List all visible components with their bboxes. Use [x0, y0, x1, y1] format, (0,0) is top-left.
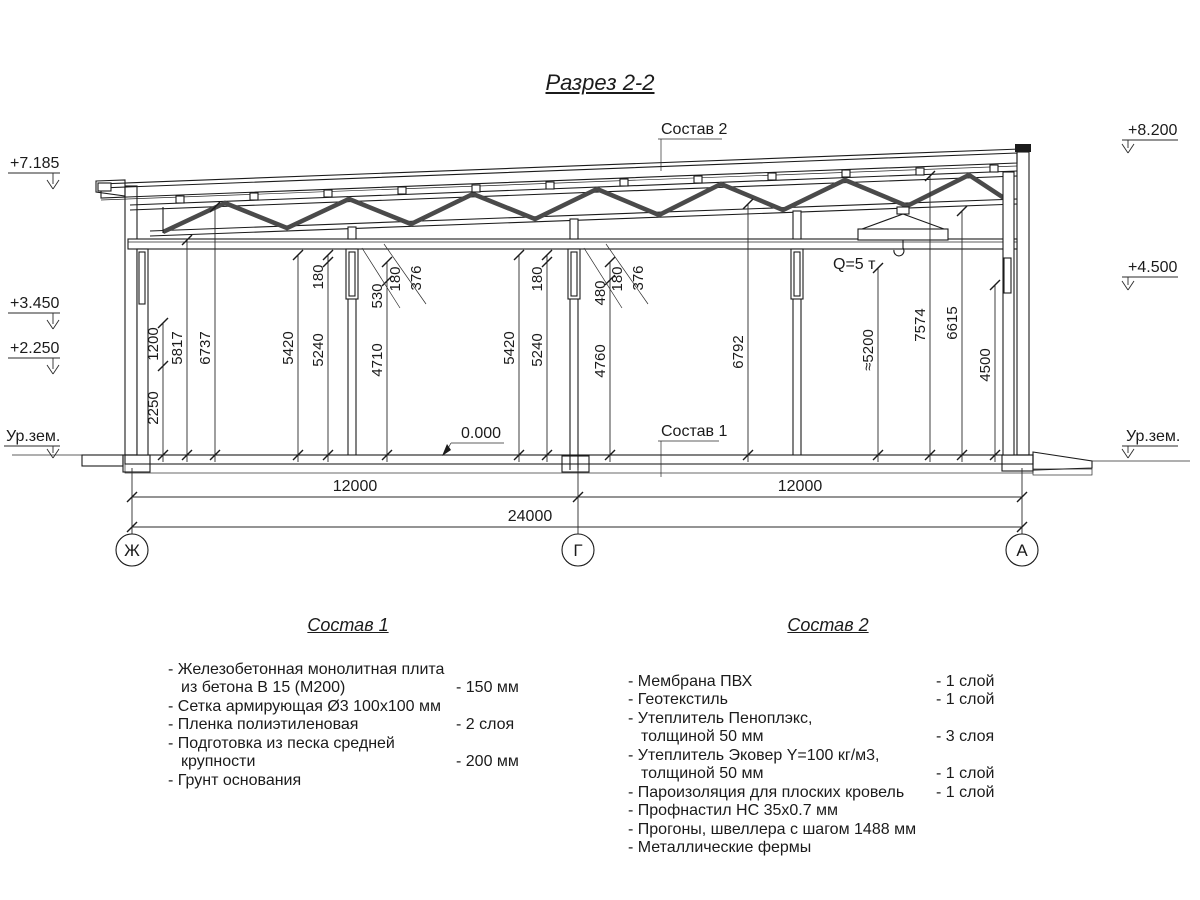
zero-level-label: 0.000 [461, 425, 501, 442]
legend-item: - Профнастил НС 35х0.7 мм [628, 802, 1008, 821]
purlins [176, 165, 998, 203]
canopy [96, 180, 125, 196]
legend-item: - Подготовка из песка средней крупности … [168, 735, 528, 772]
legend-line: - Железобетонная монолитная плита [168, 661, 456, 680]
legend-item: - Прогоны, швеллера с шагом 1488 мм [628, 821, 1008, 840]
dim-2250: 2250 [145, 391, 162, 424]
dim-4760: 4760 [592, 344, 609, 377]
legend-line: - Подготовка из песка средней [168, 735, 456, 754]
legend-value: - 1 слой [936, 784, 1008, 803]
dim-530: 530 [369, 283, 386, 308]
axis-label-zh: Ж [124, 541, 140, 560]
dim-5420-b: 5420 [501, 331, 518, 364]
dim-1200: 1200 [145, 327, 162, 360]
callout-sostav2-label: Состав 2 [661, 121, 727, 138]
legend-value: - 1 слой [936, 765, 1008, 784]
legend-line: - Профнастил НС 35х0.7 мм [628, 802, 936, 821]
elevation-marks-right: +8.200 +4.500 Ур.зем. [1122, 122, 1180, 458]
dim-4500: 4500 [977, 348, 994, 381]
callout-sostav1-label: Состав 1 [661, 423, 727, 440]
parapet-cap [1015, 144, 1031, 152]
legend-value: - 1 слой [936, 673, 1008, 692]
legend-line: из бетона В 15 (М200) [168, 679, 456, 698]
elev-7185: +7.185 [10, 155, 59, 172]
crane-capacity-label: Q=5 т [833, 256, 876, 273]
legend-item: - Пароизоляция для плоских кровель - 1 с… [628, 784, 1008, 803]
legend-line: - Геотекстиль [628, 691, 936, 710]
dim-lead-376-b: 376 [630, 265, 647, 290]
legend-line: - Утеплитель Пеноплэкс, [628, 710, 936, 729]
column-right [1003, 172, 1014, 455]
callout-sostav2: Состав 2 [658, 121, 727, 171]
legend-line: - Пароизоляция для плоских кровель [628, 784, 936, 803]
wall-right-parapet [1017, 152, 1029, 455]
legend-line: - Металлические фермы [628, 839, 936, 858]
dim-5817: 5817 [169, 331, 186, 364]
dim-5240-a: 5240 [310, 333, 327, 366]
grid-axes: Ж Г А [116, 534, 1038, 566]
foundation-right [1002, 455, 1033, 471]
legend-line: - Сетка армирующая Ø3 100х100 мм [168, 698, 456, 717]
legend2-heading: Состав 2 [638, 616, 1018, 635]
legend-line: крупности [168, 753, 456, 772]
legend-value: - 1 слой [936, 691, 1008, 710]
axis-label-a: А [1016, 541, 1028, 560]
drawing-sheet: Разрез 2-2 [0, 0, 1200, 900]
dim-7574: 7574 [912, 308, 929, 341]
ramp [1033, 452, 1092, 470]
dim-6792: 6792 [730, 335, 747, 368]
callout-sostav1: Состав 1 [658, 423, 727, 477]
dim-bay1-12000: 12000 [333, 478, 378, 495]
dim-5420-a: 5420 [280, 331, 297, 364]
legend-line: толщиной 50 мм [628, 728, 936, 747]
legend-item: - Металлические фермы [628, 839, 1008, 858]
elev-4500: +4.500 [1128, 259, 1177, 276]
elev-8200: +8.200 [1128, 122, 1177, 139]
wall-left [125, 186, 137, 455]
legend-item: - Утеплитель Эковер Y=100 кг/м3, толщино… [628, 747, 1008, 784]
dim-total-24000: 24000 [508, 508, 553, 525]
legend-item: - Геотекстиль - 1 слой [628, 691, 1008, 710]
dim-lead-376-a: 376 [408, 265, 425, 290]
dim-180-a: 180 [310, 264, 327, 289]
legend-sostav1: Состав 1 - Железобетонная монолитная пли… [168, 616, 528, 790]
elev-ground-right: Ур.зем. [1126, 428, 1180, 445]
roof [99, 149, 1020, 200]
horizontal-dimensions: 12000 12000 24000 [127, 468, 1027, 534]
column-2 [568, 219, 580, 470]
dim-480: 480 [592, 280, 609, 305]
legend-line: - Прогоны, швеллера с шагом 1488 мм [628, 821, 936, 840]
legend-line: - Утеплитель Эковер Y=100 кг/м3, [628, 747, 936, 766]
legend-item: - Железобетонная монолитная плита из бет… [168, 661, 528, 698]
column-1 [346, 227, 358, 455]
legend-sostav2: Состав 2 - Мембрана ПВХ - 1 слой - Геоте… [628, 616, 1008, 858]
legend-line: толщиной 50 мм [628, 765, 936, 784]
legend-line: - Пленка полиэтиленовая [168, 716, 456, 735]
elev-3450: +3.450 [10, 295, 59, 312]
legend-item: - Утеплитель Пеноплэкс, толщиной 50 мм -… [628, 710, 1008, 747]
dim-bay2-12000: 12000 [778, 478, 823, 495]
dim-180-b: 180 [529, 266, 546, 291]
legend-value: - 150 мм [456, 679, 528, 698]
dim-5200: ≈5200 [860, 329, 877, 371]
axis-label-g: Г [573, 541, 582, 560]
section-drawing: Q=5 т 1200 2250 5817 6737 5420 180 5240 … [0, 0, 1200, 600]
dim-4710: 4710 [369, 343, 386, 376]
elev-ground-left: Ур.зем. [6, 428, 60, 445]
dim-6615: 6615 [944, 306, 961, 339]
legend-item: - Грунт основания [168, 772, 528, 791]
legend-value: - 200 мм [456, 753, 528, 772]
dim-5240-b: 5240 [529, 333, 546, 366]
elev-2250: +2.250 [10, 340, 59, 357]
legend-line: - Грунт основания [168, 772, 456, 791]
legend-value: - 2 слоя [456, 716, 528, 735]
vertical-dimensions: 1200 2250 5817 6737 5420 180 5240 530 47… [145, 171, 1000, 462]
legend-item: - Мембрана ПВХ - 1 слой [628, 673, 1008, 692]
elevation-marks-left: +7.185 +3.450 +2.250 Ур.зем. [4, 155, 60, 458]
legend-item: - Пленка полиэтиленовая - 2 слоя [168, 716, 528, 735]
dim-6737: 6737 [197, 331, 214, 364]
dim-lead-180-b: 180 [609, 266, 626, 291]
zero-level-mark: 0.000 [442, 425, 504, 456]
legend-item: - Сетка армирующая Ø3 100х100 мм [168, 698, 528, 717]
dim-lead-180-a: 180 [387, 266, 404, 291]
legend-line: - Мембрана ПВХ [628, 673, 936, 692]
legend-value: - 3 слоя [936, 728, 1008, 747]
legend1-heading: Состав 1 [168, 616, 528, 635]
